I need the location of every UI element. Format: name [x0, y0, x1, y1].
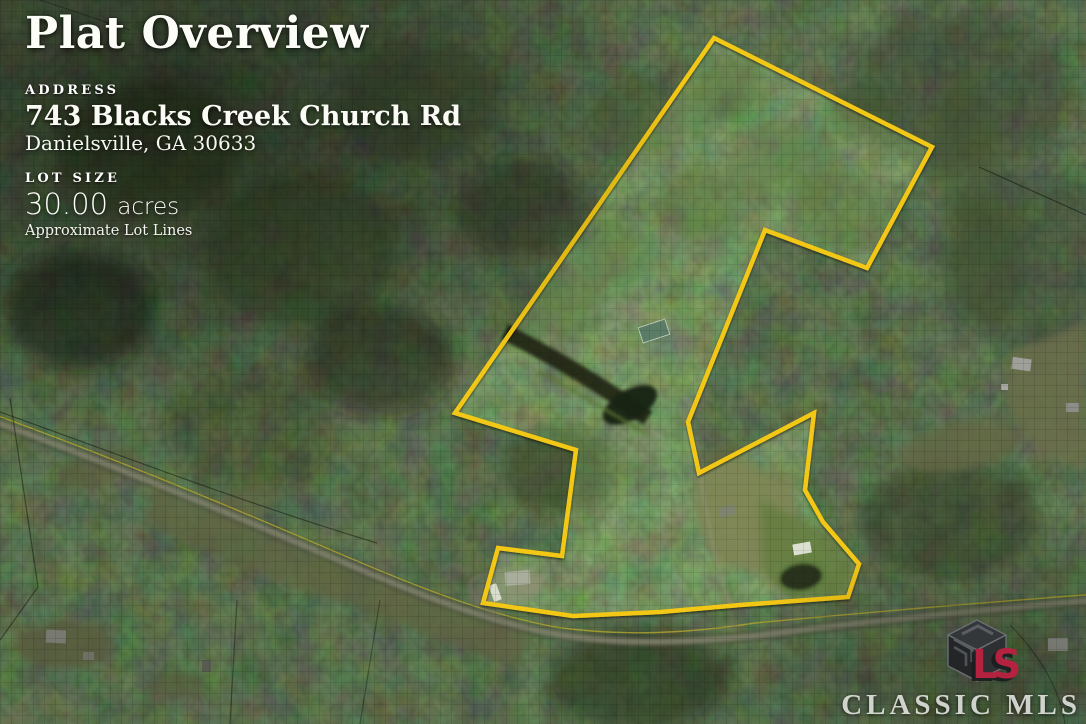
lot-size-unit: acres: [117, 194, 179, 220]
lot-size-value: 30.00: [25, 187, 108, 221]
info-panel: Plat Overview ADDRESS 743 Blacks Creek C…: [25, 12, 461, 239]
lot-size-value-row: 30.00 acres: [25, 191, 461, 219]
page-title: Plat Overview: [25, 12, 461, 56]
address-line1: 743 Blacks Creek Church Rd: [25, 103, 461, 130]
brand-name: CLASSIC MLS: [841, 689, 1081, 722]
lot-lines-note: Approximate Lot Lines: [25, 223, 461, 239]
logo-monogram: LS: [972, 642, 1018, 688]
address-label: ADDRESS: [25, 83, 461, 98]
address-line2: Danielsville, GA 30633: [25, 133, 461, 154]
plat-overview-image: LS LS Plat Overview ADDRESS 743 Blacks C…: [0, 0, 1086, 724]
lot-size-label: LOT SIZE: [25, 171, 461, 186]
